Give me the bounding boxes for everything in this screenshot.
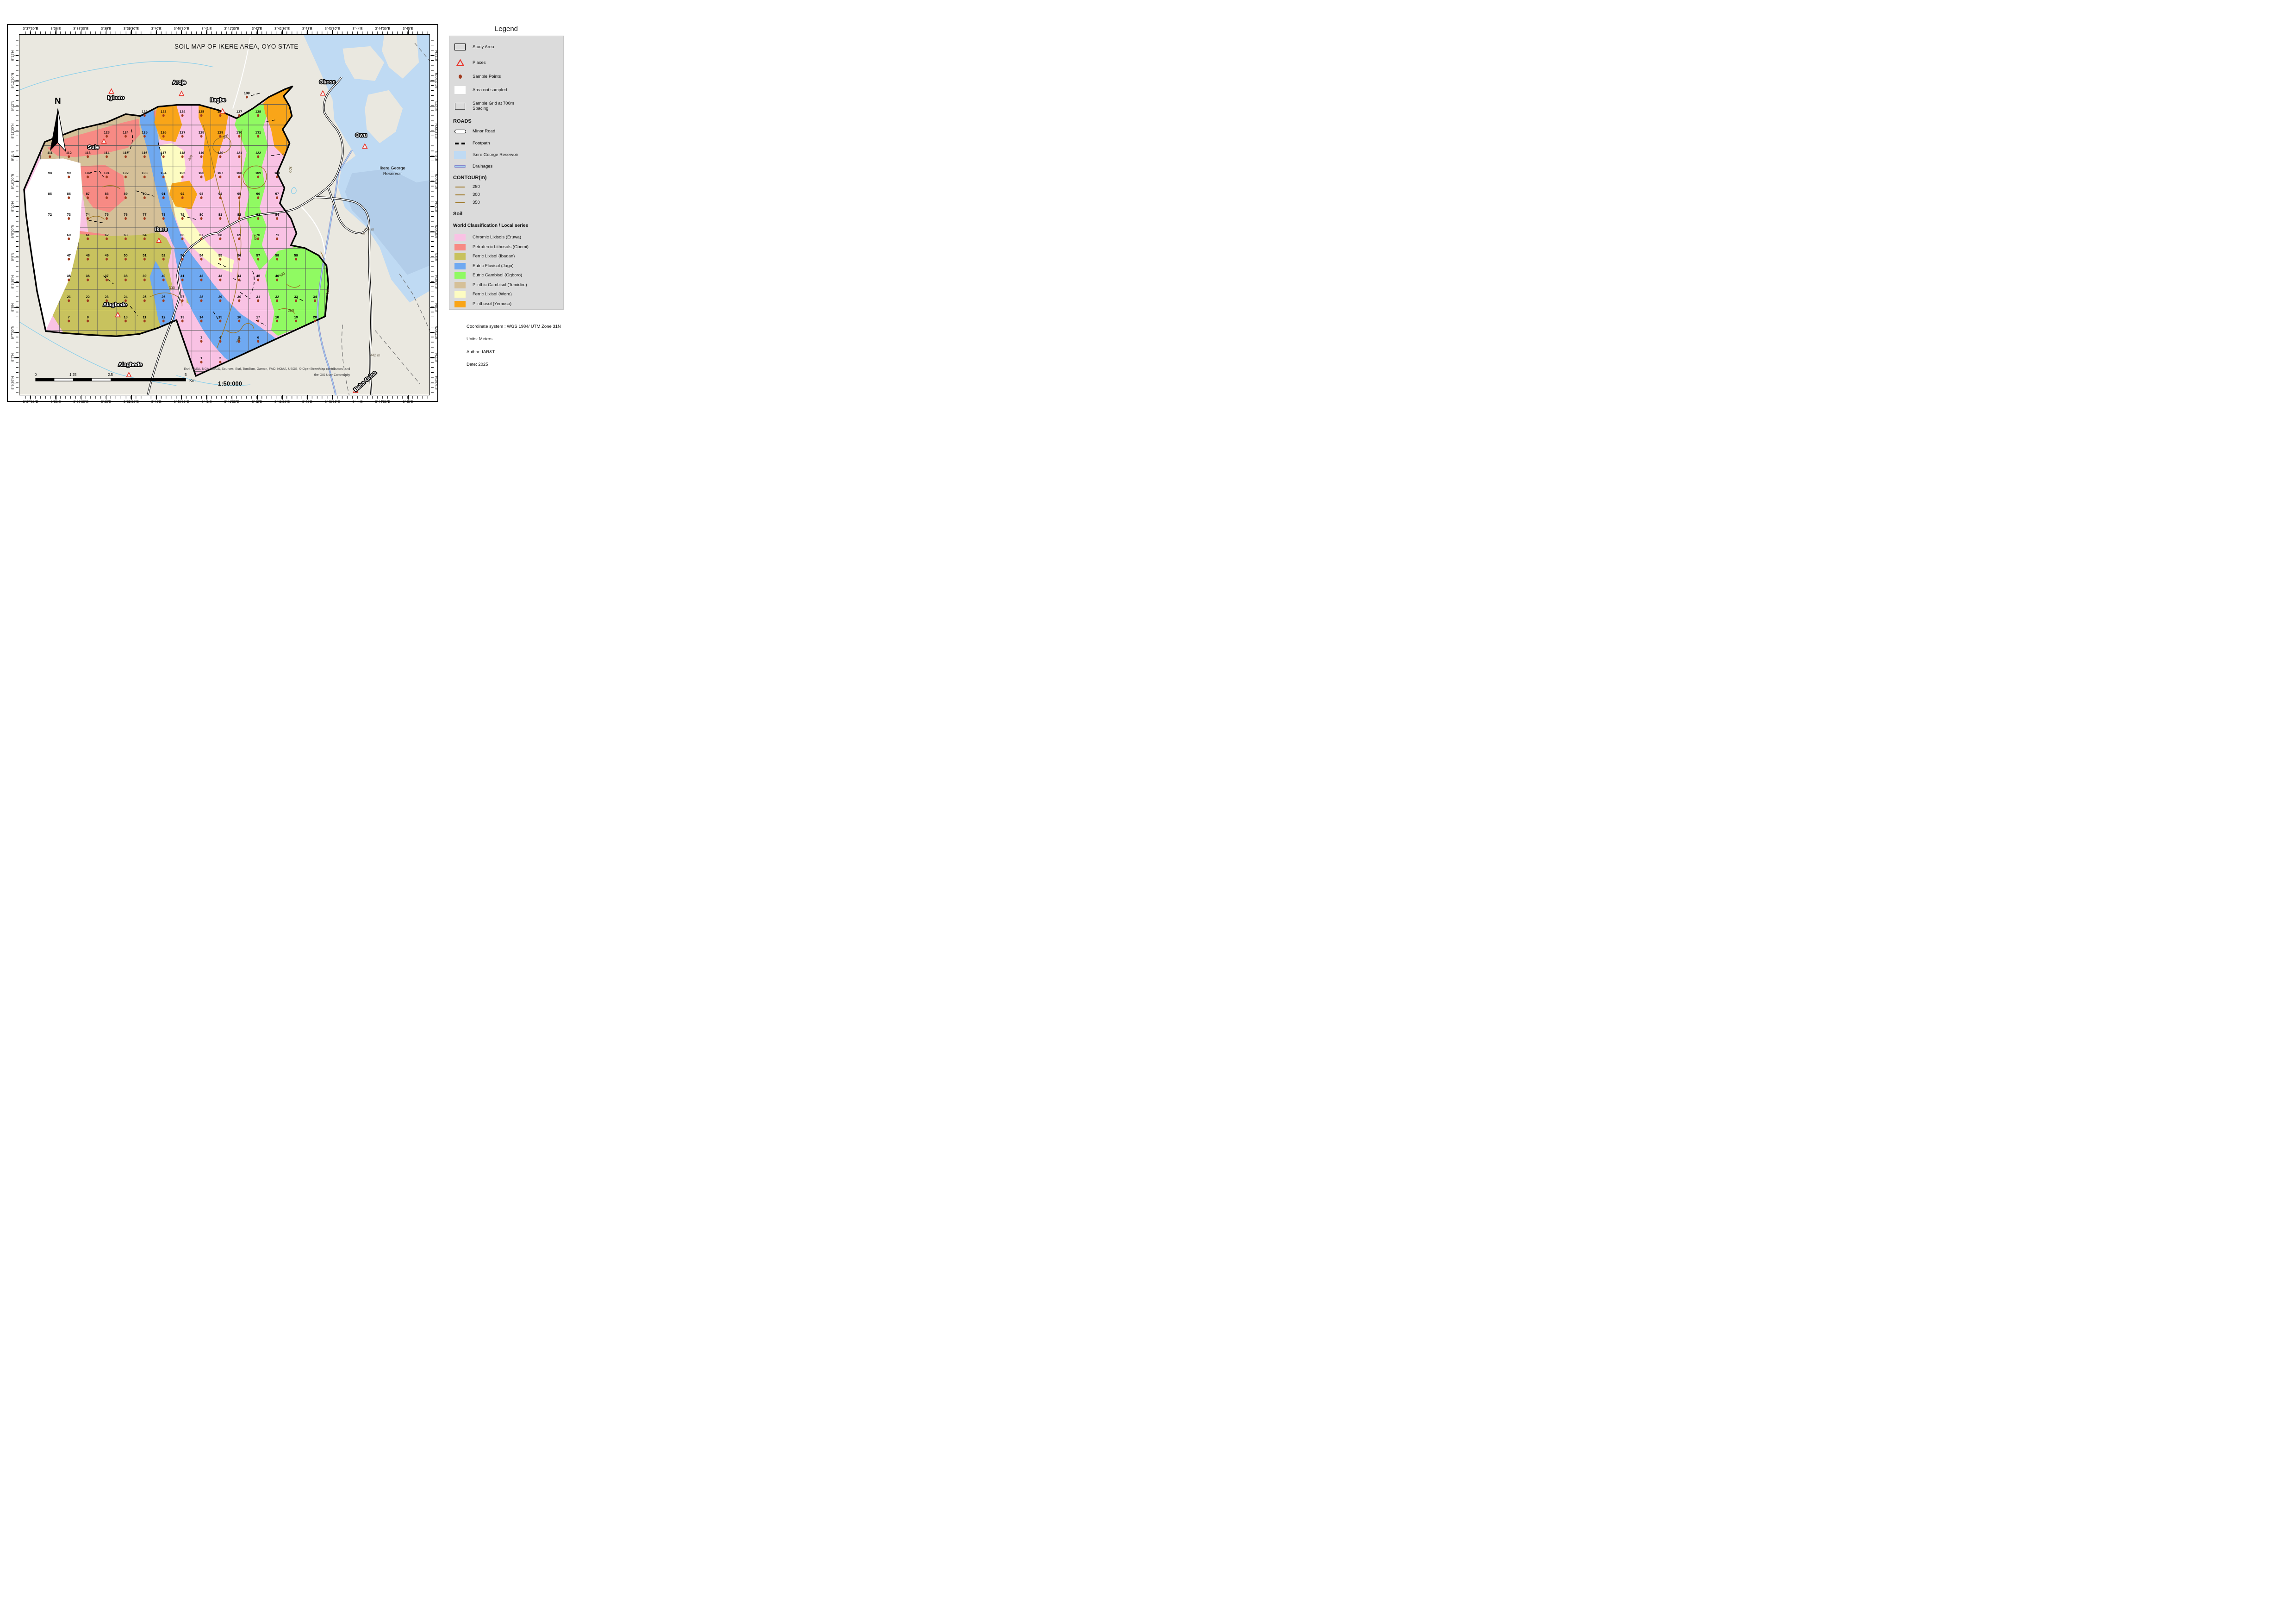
axis-label-right: 8°11'30"N (435, 124, 439, 139)
sample-dot (238, 135, 241, 137)
sample-number: 15 (218, 315, 222, 319)
sample-number: 52 (162, 253, 165, 257)
sample-number: 113 (85, 150, 91, 155)
sample-dot (87, 155, 89, 158)
scale-ratio: 1:50:000 (218, 380, 242, 387)
sample-number: 8 (87, 315, 89, 319)
axis-tick-top (332, 30, 333, 34)
sample-dot (124, 279, 127, 281)
sample-dot (257, 340, 259, 343)
sample-number: 27 (180, 295, 184, 299)
sample-dot (276, 319, 278, 322)
sample-dot (87, 319, 89, 322)
sample-number: 25 (143, 295, 146, 299)
sample-dot (246, 96, 248, 99)
axis-tick-top (307, 30, 308, 34)
legend-item-drainages[interactable]: Drainages (454, 164, 492, 169)
axis-tick-top (257, 30, 257, 34)
soil-swatch-ogboro (454, 272, 466, 279)
legend-item-soil-gbemi[interactable]: Petroferric Lithosols (Gbemi) (454, 244, 529, 250)
sample-dot (87, 196, 89, 199)
sample-number: 48 (86, 253, 90, 257)
map-frame: 3°37'30"E3°38'E3°38'30"E3°39'E3°39'30"E3… (7, 24, 438, 402)
axis-tick-bottom (131, 395, 131, 400)
sample-number: 69 (237, 233, 241, 237)
attribution-line2: the GIS User Community (314, 374, 350, 377)
sample-number: 81 (218, 212, 222, 217)
axis-tick-bottom (81, 395, 81, 400)
axis-label-right: 8°7'30"N (435, 325, 439, 339)
sample-number: 78 (162, 212, 165, 217)
sample-dot (68, 196, 70, 199)
sample-dot (106, 279, 108, 281)
sample-dot (124, 237, 127, 240)
axis-tick-right (430, 307, 435, 308)
legend-label: 250 (473, 184, 480, 189)
sample-number: 107 (218, 171, 223, 175)
axis-label-bottom: 3°38'30"E (73, 400, 88, 404)
sample-dot (257, 258, 259, 261)
sample-dot (106, 175, 108, 178)
sample-number: 111 (47, 150, 53, 155)
legend-item-area-not-sampled[interactable]: Area not sampled (454, 86, 507, 94)
sample-dot (143, 319, 146, 322)
legend-item-sample-points[interactable]: Sample Points (454, 74, 501, 79)
sample-dot (106, 135, 108, 137)
sample-dot (87, 279, 89, 281)
sample-number: 17 (256, 315, 260, 319)
sample-dot (162, 300, 165, 302)
sample-dot (276, 196, 278, 199)
sample-dot (162, 319, 165, 322)
sample-number: 49 (105, 253, 108, 257)
place-label[interactable]: Igboro (108, 95, 124, 101)
legend-item-footpath[interactable]: Footpath (454, 141, 490, 146)
sample-dot (106, 237, 108, 240)
sample-number: 98 (48, 171, 52, 175)
legend-item-soil-ogboro[interactable]: Eutric Cambisol (Ogboro) (454, 272, 522, 279)
sample-dot (143, 175, 146, 178)
sample-number: 54 (199, 253, 204, 257)
axis-tick-top (408, 30, 408, 34)
contour-label: 300 (169, 286, 175, 290)
coordinate-system-text: Coordinate system : WGS 1984/ UTM Zone 3… (467, 324, 567, 330)
axis-tick-right (430, 131, 435, 131)
contour-line-icon (455, 194, 465, 195)
sample-number: 33 (294, 295, 298, 299)
axis-label-right: 8°6'30"N (435, 376, 439, 389)
sample-dot (143, 196, 146, 199)
sample-number: 16 (237, 315, 241, 319)
axis-tick-bottom (408, 395, 408, 400)
sample-number: 47 (67, 253, 71, 257)
scale-unit: Km (189, 378, 195, 383)
axis-tick-right (430, 257, 435, 257)
sample-dot (68, 300, 70, 302)
axis-tick-top (282, 30, 283, 34)
sample-number: 50 (124, 253, 127, 257)
sample-dot (162, 135, 165, 137)
place-label[interactable]: Owu (355, 132, 367, 138)
sample-number: 119 (199, 150, 204, 155)
legend-roads-header: ROADS (453, 119, 472, 124)
sample-dot (162, 217, 165, 220)
sample-number: 135 (199, 110, 204, 114)
axis-label-bottom: 3°43'E (302, 400, 312, 404)
sample-number: 22 (86, 295, 90, 299)
sample-dot (219, 319, 222, 322)
sample-number: 38 (124, 274, 127, 278)
sample-number: 138 (255, 110, 261, 114)
sample-number: 14 (199, 315, 204, 319)
legend-item-soil-eruwa[interactable]: Chromic Lixisols (Eruwa) (454, 234, 521, 241)
legend-label: Area not sampled (473, 87, 507, 93)
sample-dot (219, 114, 222, 117)
right-axis-minor-ticks (431, 34, 434, 395)
sample-dot (124, 175, 127, 178)
sample-dot (295, 319, 297, 322)
sample-number: 83 (256, 212, 260, 217)
sample-dot (162, 279, 165, 281)
sample-number: 134 (180, 110, 186, 114)
legend-item-soil-yemoso[interactable]: Plinthosol (Yemoso) (454, 301, 511, 307)
legend-item-soil-temidire[interactable]: Plinthic Cambisol (Temidire) (454, 282, 527, 288)
sample-dot (314, 319, 316, 322)
axis-tick-top (181, 30, 182, 34)
map-svg: 1391321331341351361371381231241251261271… (19, 35, 429, 395)
axis-tick-top (156, 30, 157, 34)
north-arrow-label: N (55, 97, 61, 106)
axis-tick-bottom (181, 395, 182, 400)
axis-tick-top (31, 30, 31, 34)
sample-number: 55 (218, 253, 222, 257)
legend-item-reservoir[interactable]: Ikere George Reservoir (454, 151, 518, 159)
sample-dot (238, 175, 241, 178)
axis-label-right: 8°8'N (435, 303, 439, 311)
sample-dot (143, 237, 146, 240)
sample-number: 57 (256, 253, 260, 257)
axis-label-bottom: 3°42'30"E (274, 400, 290, 404)
sample-dot (106, 196, 108, 199)
sample-number: 118 (180, 150, 185, 155)
axis-label-right: 8°12'N (435, 101, 439, 111)
sample-dot (87, 300, 89, 302)
legend-panel: Study Area Places Sample Points Area not… (449, 36, 564, 310)
legend-label: Ferric Lixisol (Ibadan) (473, 254, 515, 259)
sample-number: 24 (124, 295, 128, 299)
sample-number: 84 (275, 212, 280, 217)
peak-label: 442 m (370, 353, 380, 357)
sample-number: 110 (274, 171, 280, 175)
legend-label: Eutric Fluvisol (Jago) (473, 263, 514, 269)
sample-number: 41 (180, 274, 184, 278)
place-label[interactable]: Okose (319, 80, 336, 85)
sample-dot (106, 258, 108, 261)
sample-dot (68, 319, 70, 322)
axis-tick-left (14, 106, 19, 106)
units-text: Units: Meters (467, 337, 567, 342)
axis-tick-bottom (332, 395, 333, 400)
sample-dot (200, 114, 203, 117)
axis-label-right: 8°8'30"N (435, 275, 439, 289)
sample-dot (276, 237, 278, 240)
place-label[interactable]: Alagbede (118, 362, 143, 368)
soil-swatch-ibadan (454, 253, 466, 260)
sample-dot (257, 175, 259, 178)
axis-tick-right (430, 282, 435, 282)
sample-number: 75 (105, 212, 108, 217)
sample-number: 94 (218, 192, 223, 196)
sample-dot (238, 319, 241, 322)
sample-number: 120 (218, 150, 223, 155)
sample-number: 40 (162, 274, 165, 278)
axis-tick-top (81, 30, 81, 34)
place-label[interactable]: Sule (88, 144, 99, 150)
author-text: Author: IAR&T (467, 350, 567, 355)
sample-dot (181, 175, 184, 178)
sample-dot (200, 196, 203, 199)
sample-number: 131 (255, 130, 261, 134)
legend-item-places[interactable]: Places (454, 59, 486, 66)
sample-dot (68, 175, 70, 178)
sample-number: 128 (199, 130, 204, 134)
sample-number: 34 (313, 295, 317, 299)
sample-number: 90 (143, 192, 146, 196)
legend-item-soil-ibadan[interactable]: Ferric Lixisol (Ibadan) (454, 253, 515, 260)
contour-label: 300 (288, 166, 292, 173)
sample-dot (219, 217, 222, 220)
sample-number: 62 (105, 233, 108, 237)
legend-label: Drainages (473, 164, 492, 169)
axis-tick-top (232, 30, 232, 34)
page: 3°37'30"E3°38'E3°38'30"E3°39'E3°39'30"E3… (0, 0, 574, 406)
sample-number: 1 (200, 356, 202, 360)
axis-tick-top (131, 30, 131, 34)
axis-tick-bottom (31, 395, 31, 400)
axis-tick-right (430, 231, 435, 232)
area-not-sampled-swatch (454, 86, 466, 94)
sample-dot (257, 217, 259, 220)
sample-dot (87, 217, 89, 220)
axis-label-bottom: 3°39'30"E (124, 400, 139, 404)
sample-number: 108 (236, 171, 242, 175)
axis-tick-right (430, 181, 435, 182)
map-metadata: Coordinate system : WGS 1984/ UTM Zone 3… (467, 324, 567, 375)
axis-tick-left (14, 357, 19, 358)
sample-dot (68, 279, 70, 281)
legend-item-soil-woro[interactable]: Ferric Lixisol (Woro) (454, 291, 512, 298)
axis-tick-top (56, 30, 56, 34)
axis-label-bottom: 3°44'30"E (375, 400, 390, 404)
sample-number: 63 (124, 233, 127, 237)
legend-label: Plinthic Cambisol (Temidire) (473, 282, 527, 287)
sample-number: 89 (124, 192, 127, 196)
legend-item-contour-250[interactable]: 250 (454, 184, 480, 189)
legend-label: Ikere George Reservoir (473, 152, 518, 157)
sample-dot (219, 340, 222, 343)
legend-item-contour-300[interactable]: 300 (454, 192, 480, 197)
sample-dot (200, 175, 203, 178)
soil-swatch-eruwa (454, 234, 466, 241)
svg-text:0: 0 (35, 373, 37, 377)
legend-item-sample-grid[interactable]: Sample Grid at 700mSpacing (454, 101, 514, 112)
sample-dot (200, 279, 203, 281)
sample-number: 133 (161, 110, 166, 114)
sample-dot (276, 279, 278, 281)
sample-number: 56 (237, 253, 241, 257)
sample-dot (219, 361, 222, 363)
sample-number: 61 (86, 233, 90, 237)
sample-dot (124, 319, 127, 322)
axis-tick-top (206, 30, 207, 34)
legend-label: Places (473, 60, 486, 65)
contour-label: 250 (325, 288, 330, 295)
sample-number: 114 (104, 150, 110, 155)
place-label[interactable]: Ikere (155, 227, 168, 232)
map-canvas[interactable]: 1391321331341351361371381231241251261271… (19, 34, 430, 395)
legend-label: Ferric Lixisol (Woro) (473, 292, 512, 297)
sample-number: 137 (236, 110, 242, 114)
legend-item-contour-350[interactable]: 350 (454, 200, 480, 205)
sample-dot (106, 217, 108, 220)
sample-dot (257, 319, 259, 322)
axis-tick-top (106, 30, 106, 34)
sample-dot (87, 237, 89, 240)
sample-number: 97 (275, 192, 279, 196)
sample-number: 37 (105, 274, 108, 278)
axis-label-bottom: 3°43'30"E (325, 400, 340, 404)
sample-number: 102 (123, 171, 128, 175)
place-label[interactable]: Itagbe (210, 98, 226, 103)
sample-dot (162, 196, 165, 199)
sample-number: 117 (161, 150, 166, 155)
sample-point-icon (459, 75, 462, 79)
sample-dot (219, 237, 222, 240)
axis-tick-bottom (307, 395, 308, 400)
sample-number: 121 (236, 150, 242, 155)
sample-number: 29 (218, 295, 222, 299)
legend-label: 350 (473, 200, 480, 205)
sample-number: 19 (294, 315, 298, 319)
sample-dot (219, 175, 222, 178)
sample-dot (238, 300, 241, 302)
axis-tick-bottom (56, 395, 56, 400)
sample-number: 129 (218, 130, 223, 134)
axis-tick-left (14, 181, 19, 182)
place-label[interactable]: Alagbede (103, 302, 127, 307)
sample-number: 28 (199, 295, 203, 299)
sample-dot (124, 135, 127, 137)
sample-dot (68, 237, 70, 240)
sample-dot (143, 155, 146, 158)
axis-tick-right (430, 56, 435, 56)
sample-dot (238, 155, 241, 158)
sample-dot (295, 300, 297, 302)
axis-tick-left (14, 282, 19, 282)
sample-dot (124, 155, 127, 158)
sample-dot (106, 155, 108, 158)
sample-number: 122 (255, 150, 261, 155)
sample-dot (238, 196, 241, 199)
sample-dot (200, 319, 203, 322)
sample-number: 125 (142, 130, 147, 134)
left-axis-minor-ticks (16, 34, 19, 395)
axis-tick-right (430, 383, 435, 383)
sample-dot (162, 155, 165, 158)
sample-number: 139 (244, 91, 249, 95)
sample-dot (181, 114, 184, 117)
axis-label-right: 8°9'30"N (435, 225, 439, 238)
sample-number: 92 (180, 192, 184, 196)
sample-dot (200, 237, 203, 240)
legend-item-soil-jago[interactable]: Eutric Fluvisol (Jago) (454, 263, 514, 269)
sample-number: 79 (180, 212, 184, 217)
legend-item-minor-road[interactable]: Minor Road (454, 129, 495, 134)
sample-number: 13 (180, 315, 184, 319)
axis-tick-bottom (106, 395, 106, 400)
sample-dot (257, 135, 259, 137)
axis-label-bottom: 3°40'E (151, 400, 162, 404)
sample-number: 115 (123, 150, 128, 155)
axis-tick-bottom (232, 395, 232, 400)
sample-number: 26 (162, 295, 165, 299)
legend-soil-header: Soil (453, 211, 462, 217)
sample-dot (87, 175, 89, 178)
sample-dot (162, 258, 165, 261)
sample-dot (49, 155, 51, 158)
axis-label-right: 8°12'30"N (435, 73, 439, 88)
sample-dot (200, 300, 203, 302)
sample-number: 93 (199, 192, 203, 196)
sample-number: 100 (85, 171, 90, 175)
legend-contour-header: CONTOUR(m) (453, 175, 487, 181)
contour-line-icon (455, 202, 465, 203)
sample-number: 86 (67, 192, 71, 196)
sample-number: 126 (161, 130, 166, 134)
sample-dot (219, 196, 222, 199)
place-label[interactable]: Aroje (173, 80, 186, 86)
axis-label-bottom: 3°39'E (101, 400, 111, 404)
axis-tick-left (14, 307, 19, 308)
legend-title: Legend (449, 25, 564, 33)
sample-number: 45 (256, 274, 260, 278)
sample-dot (181, 155, 184, 158)
sample-dot (276, 217, 278, 220)
sample-number: 77 (143, 212, 146, 217)
sample-number: 21 (67, 295, 71, 299)
sample-number: 51 (143, 253, 146, 257)
sample-dot (257, 155, 259, 158)
sample-dot (87, 258, 89, 261)
sample-number: 53 (180, 253, 184, 257)
sample-number: 104 (161, 171, 167, 175)
axis-tick-right (430, 357, 435, 358)
sample-dot (219, 135, 222, 137)
axis-tick-left (14, 206, 19, 207)
sample-number: 39 (143, 274, 146, 278)
sample-number: 88 (105, 192, 108, 196)
sample-number: 99 (67, 171, 71, 175)
sample-number: 10 (124, 315, 127, 319)
reservoir-label-line2: Reservoir (383, 171, 402, 176)
minor-road-icon (454, 130, 466, 133)
sample-dot (276, 300, 278, 302)
sample-number: 112 (66, 150, 72, 155)
axis-label-bottom: 3°41'E (201, 400, 212, 404)
legend-item-study-area[interactable]: Study Area (454, 44, 494, 50)
sample-number: 109 (255, 171, 261, 175)
axis-label-right: 8°10'N (435, 201, 439, 212)
